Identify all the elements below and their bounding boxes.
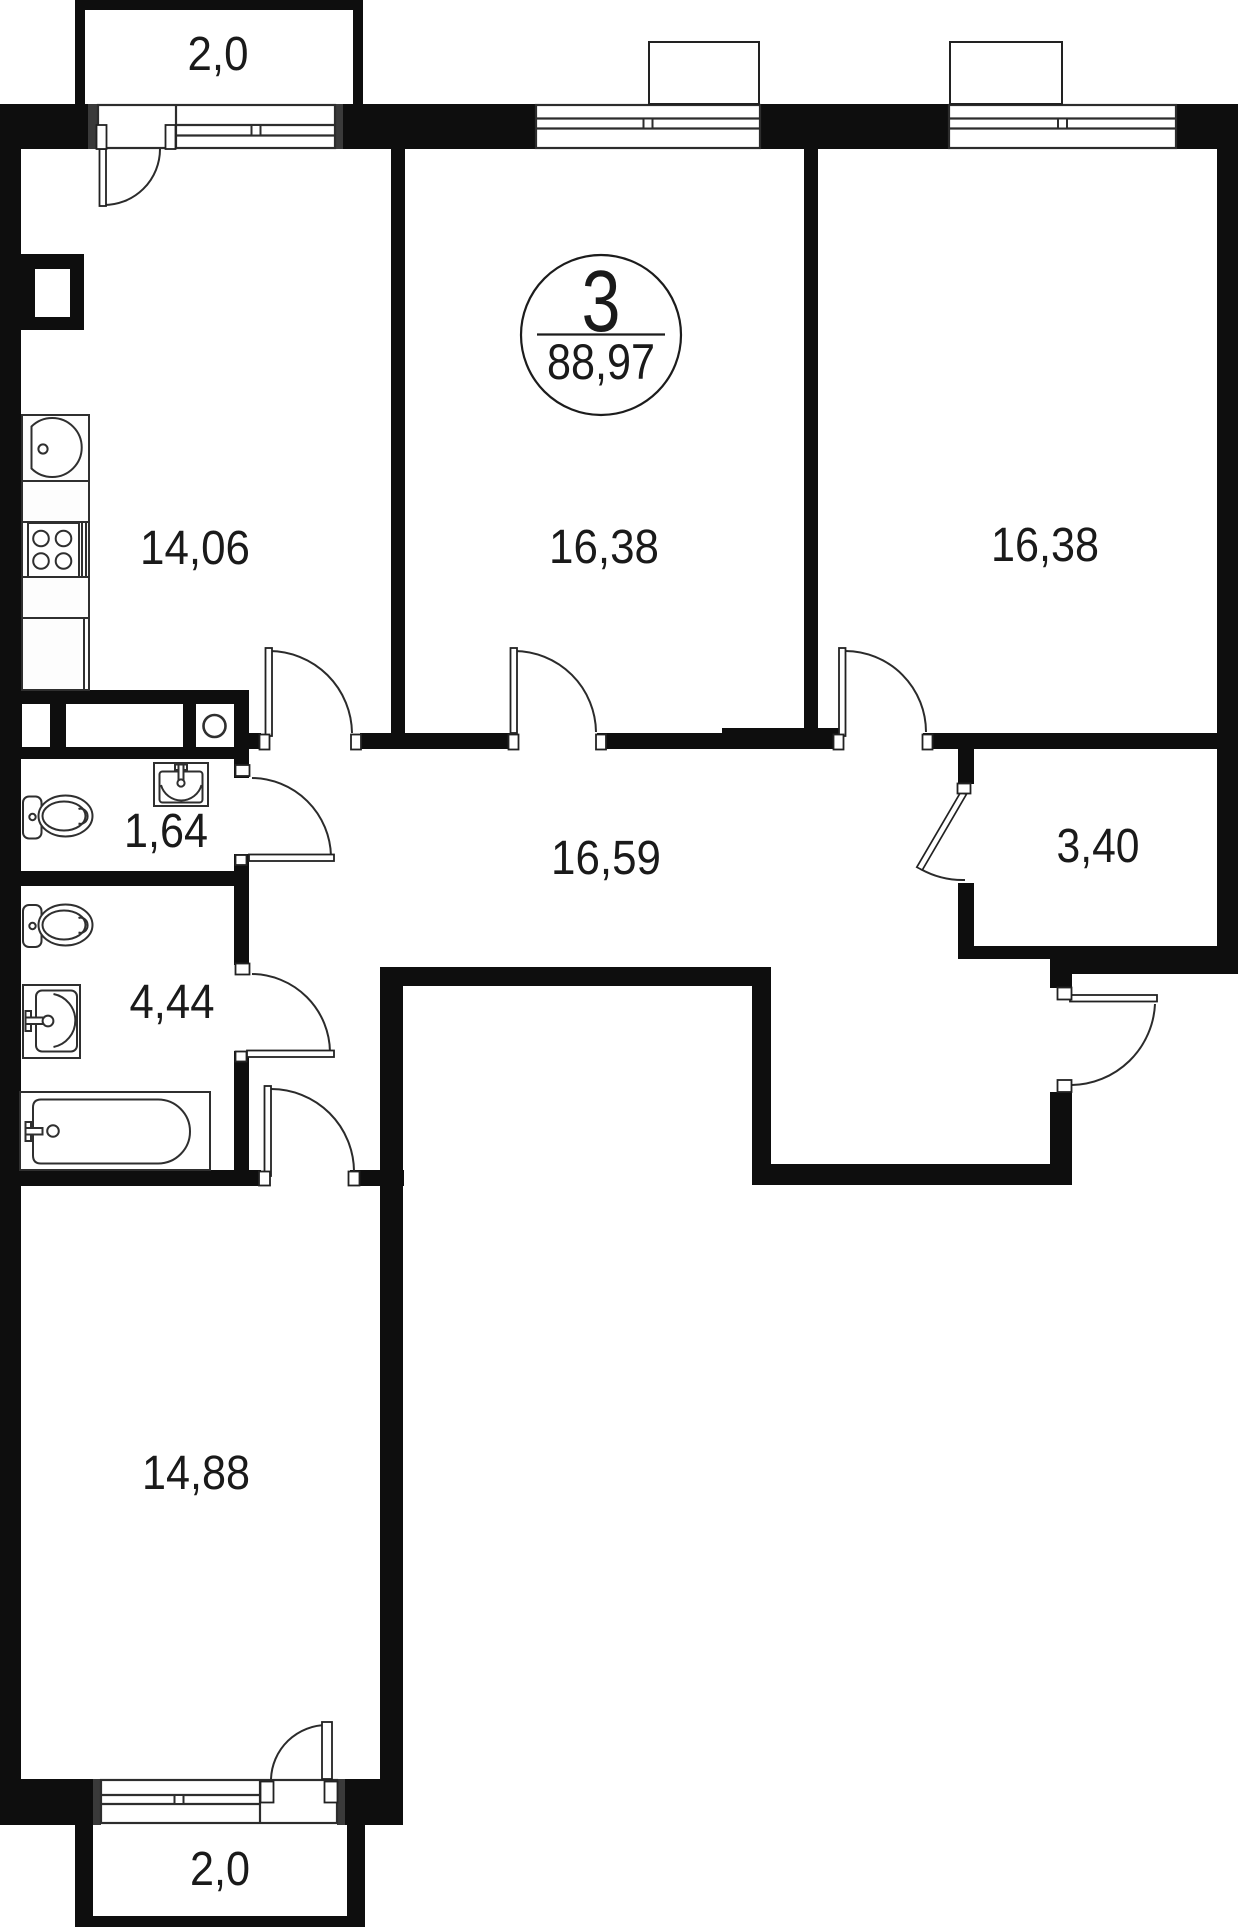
svg-text:2,0: 2,0	[190, 1843, 250, 1896]
svg-text:14,06: 14,06	[140, 522, 250, 575]
svg-text:3,40: 3,40	[1057, 820, 1140, 873]
svg-text:88,97: 88,97	[547, 334, 655, 390]
svg-text:16,59: 16,59	[551, 832, 661, 885]
svg-text:4,44: 4,44	[130, 976, 215, 1029]
svg-text:2,0: 2,0	[188, 28, 249, 81]
svg-text:1,64: 1,64	[124, 805, 208, 858]
svg-text:16,38: 16,38	[549, 521, 659, 574]
svg-text:16,38: 16,38	[991, 519, 1099, 572]
svg-text:14,88: 14,88	[142, 1447, 250, 1500]
